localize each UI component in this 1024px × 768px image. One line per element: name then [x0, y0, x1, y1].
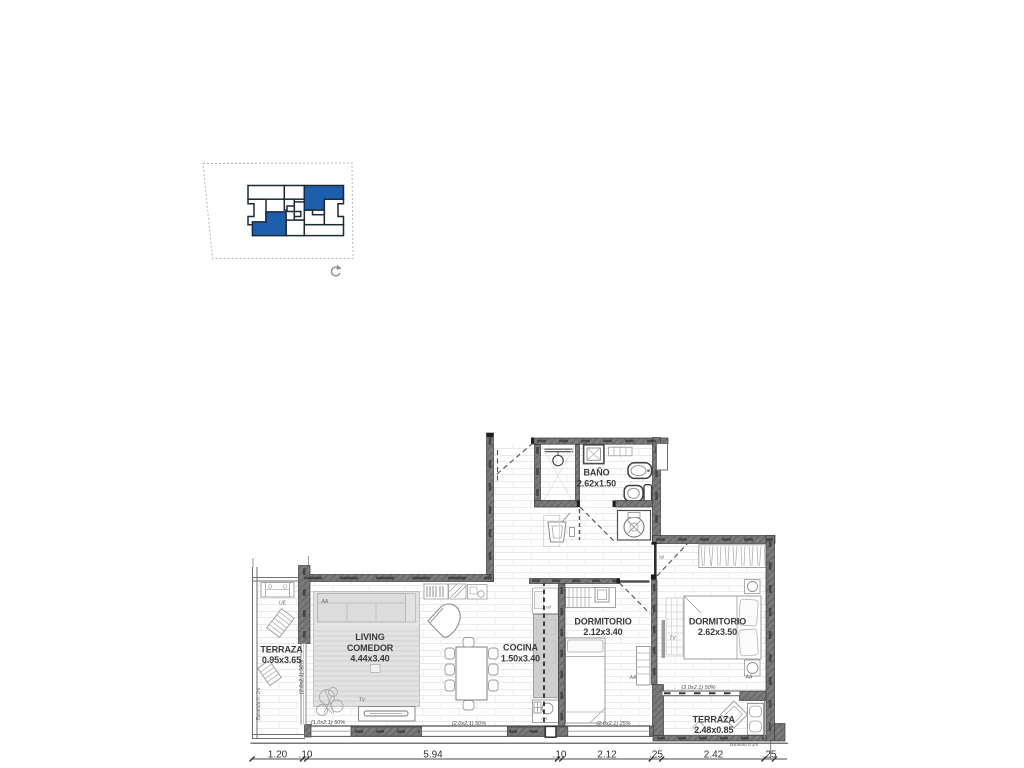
svg-text:.25: .25: [763, 750, 777, 761]
svg-text:(2.0x2.1) 50%: (2.0x2.1) 50%: [681, 685, 715, 691]
svg-text:2.12: 2.12: [597, 750, 617, 761]
svg-text:(2.0x2.1) 50%: (2.0x2.1) 50%: [452, 721, 486, 727]
svg-text:BAÑO: BAÑO: [583, 468, 609, 478]
svg-text:1.20: 1.20: [268, 750, 288, 761]
svg-text:(2.0x2.1) 25%: (2.0x2.1) 25%: [596, 721, 630, 727]
svg-text:COMEDOR: COMEDOR: [347, 643, 394, 653]
svg-text:.10: .10: [553, 750, 567, 761]
svg-text:5.94: 5.94: [423, 750, 443, 761]
svg-text:2.62x3.50: 2.62x3.50: [698, 627, 737, 637]
svg-text:Baranda h: 1m: Baranda h: 1m: [256, 688, 262, 721]
svg-text:COCINA: COCINA: [503, 643, 538, 653]
svg-text:AA: AA: [320, 599, 328, 605]
svg-text:.25: .25: [649, 750, 663, 761]
svg-text:TV: TV: [359, 698, 366, 704]
svg-text:TERRAZA: TERRAZA: [260, 644, 303, 654]
svg-text:AA.: AA.: [541, 716, 549, 721]
svg-text:2.48x0.85: 2.48x0.85: [694, 725, 733, 735]
svg-text:0.95x3.65: 0.95x3.65: [262, 655, 301, 665]
svg-text:DORMITORIO: DORMITORIO: [689, 617, 746, 627]
svg-text:TV: TV: [669, 636, 676, 642]
svg-text:2.62x1.50: 2.62x1.50: [577, 479, 616, 489]
svg-text:TERRAZA: TERRAZA: [693, 714, 736, 724]
svg-text:AA: AA: [745, 674, 753, 680]
svg-text:.10: .10: [299, 750, 313, 761]
svg-text:AA: AA: [629, 675, 637, 681]
svg-text:2.12x3.40: 2.12x3.40: [583, 627, 622, 637]
svg-text:(2.0x2.1) 50%: (2.0x2.1) 50%: [299, 660, 305, 694]
svg-text:LIVING: LIVING: [355, 632, 385, 642]
svg-text:4.44x3.40: 4.44x3.40: [350, 654, 389, 664]
svg-text:(1.0x2.1) 50%: (1.0x2.1) 50%: [311, 720, 345, 726]
svg-text:2.42: 2.42: [704, 750, 724, 761]
svg-text:1.50x3.40: 1.50x3.40: [501, 653, 540, 663]
svg-text:UE: UE: [279, 601, 287, 607]
svg-text:DORMITORIO: DORMITORIO: [574, 617, 631, 627]
